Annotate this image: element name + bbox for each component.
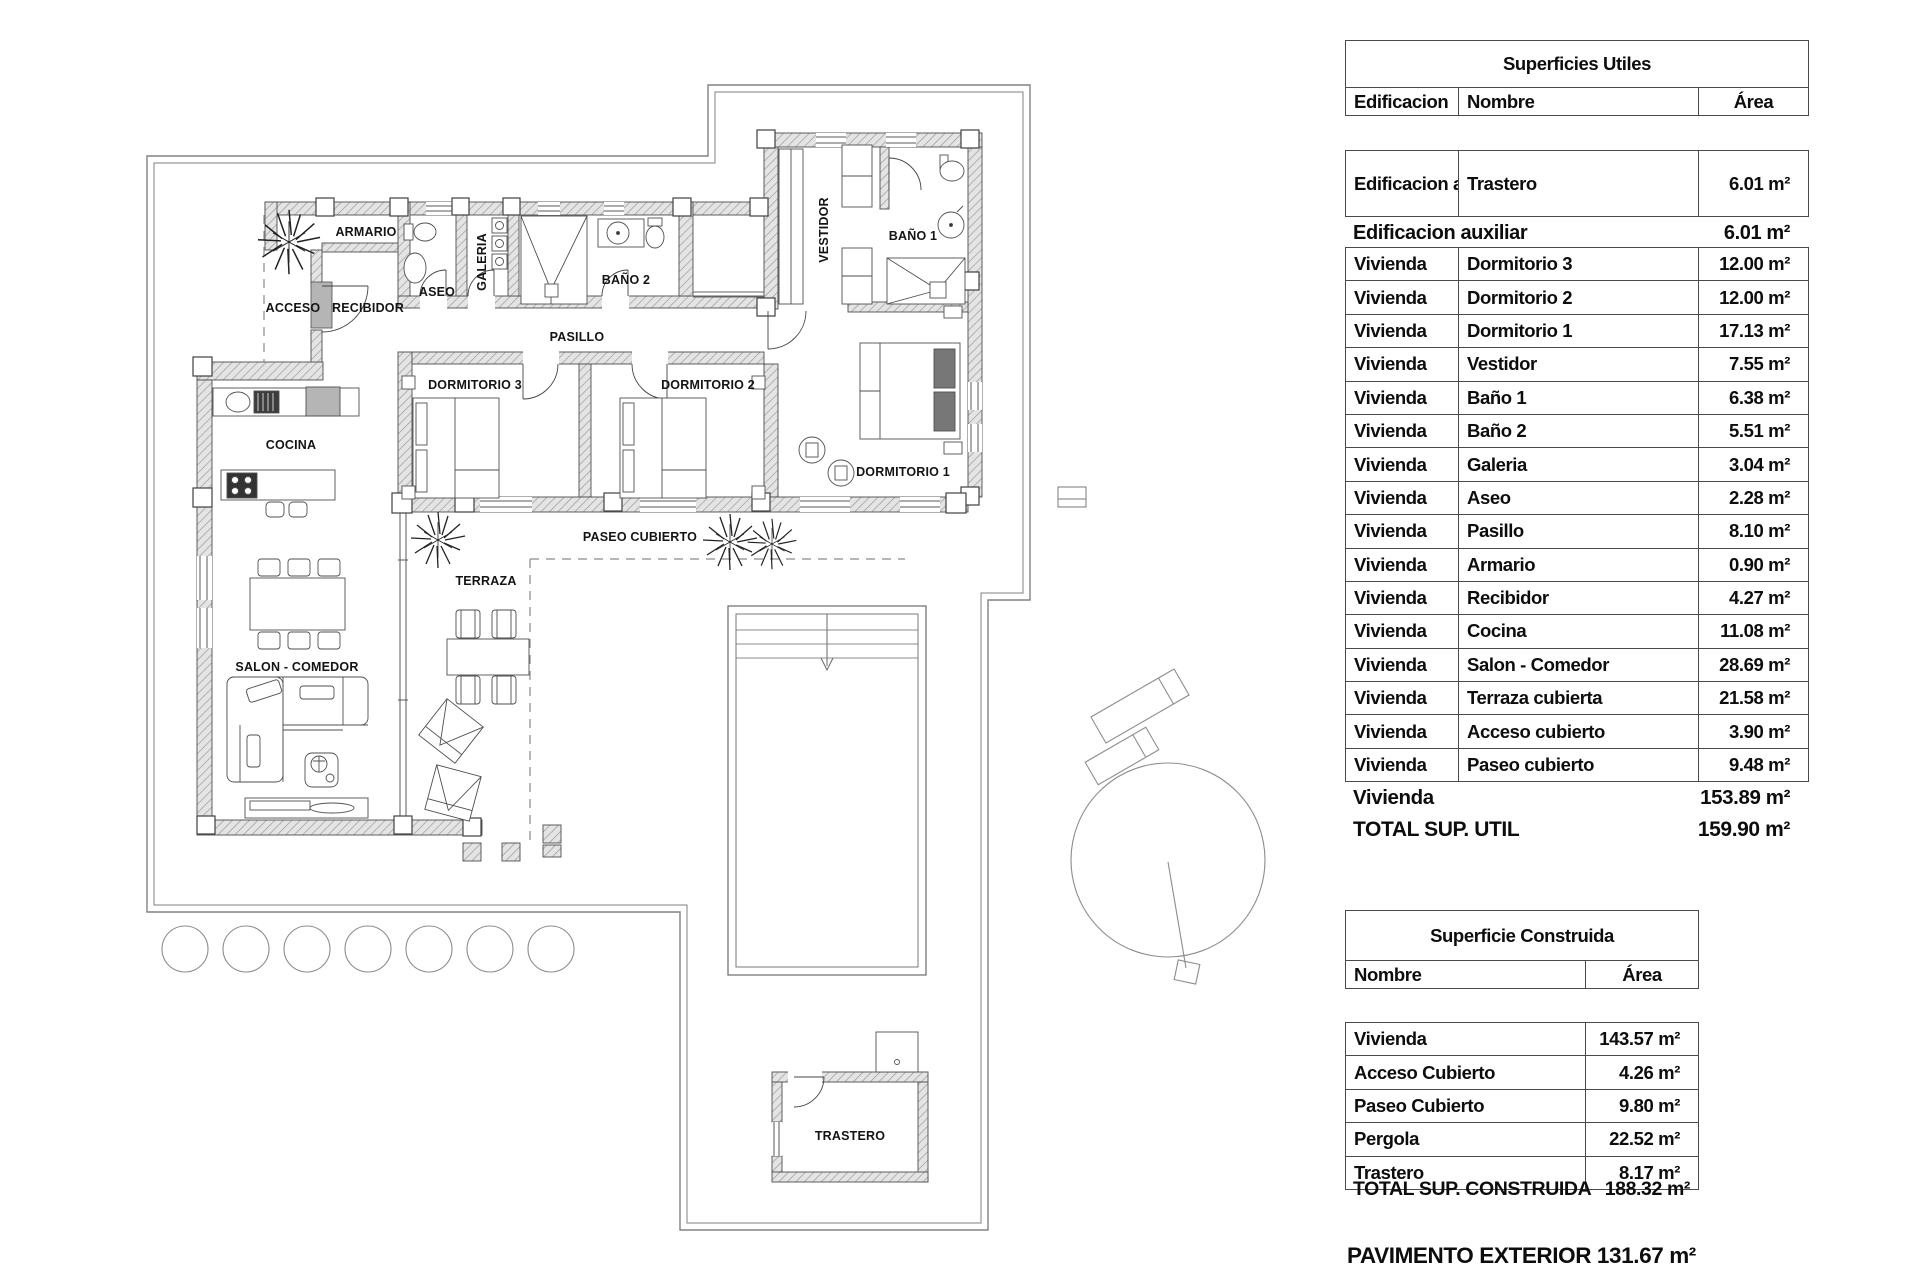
table-row: ViviendaSalon - Comedor28.69 m² xyxy=(1346,648,1809,681)
table-row: Acceso Cubierto4.26 m² xyxy=(1346,1056,1699,1089)
name-cell: Galeria xyxy=(1459,448,1699,481)
stool-icon xyxy=(289,502,307,517)
area-cell: 8.10 m² xyxy=(1699,515,1809,548)
area-cell: 4.27 m² xyxy=(1699,581,1809,614)
utiles-col-nombre: Nombre xyxy=(1459,88,1699,116)
aux-summary-row: Edificacion auxiliar 6.01 m² xyxy=(1345,222,1808,245)
area-cell: 6.38 m² xyxy=(1699,381,1809,414)
room-label-bano2: BAÑO 2 xyxy=(602,272,650,287)
toilet-icon xyxy=(646,226,664,248)
sofa-icon xyxy=(227,677,368,782)
name-cell: Vivienda xyxy=(1346,414,1459,447)
room-label-terraza: TERRAZA xyxy=(455,574,516,588)
aux-nombre-cell: Trastero xyxy=(1459,151,1699,217)
name-cell: Vivienda xyxy=(1346,314,1459,347)
name-cell: Vivienda xyxy=(1346,581,1459,614)
area-cell: 11.08 m² xyxy=(1699,615,1809,648)
name-cell: Armario xyxy=(1459,548,1699,581)
aux-summary-label: Edificacion auxiliar xyxy=(1345,222,1527,245)
dining-table xyxy=(250,578,345,630)
name-cell: Acceso cubierto xyxy=(1459,715,1699,748)
room-label-acceso: ACCESO xyxy=(266,301,321,315)
construida-title: Superficie Construida xyxy=(1346,911,1699,961)
room-label-bano1: BAÑO 1 xyxy=(889,228,937,243)
area-cell: 28.69 m² xyxy=(1699,648,1809,681)
toilet-icon xyxy=(404,224,413,240)
name-cell: Baño 1 xyxy=(1459,381,1699,414)
room-label-dormitorio2: DORMITORIO 2 xyxy=(661,378,755,392)
chair-icon xyxy=(456,610,480,638)
utiles-col-edificacion: Edificacion xyxy=(1346,88,1459,116)
bed-icon xyxy=(620,376,765,499)
room-label-dormitorio3: DORMITORIO 3 xyxy=(428,378,522,392)
table-row: ViviendaDormitorio 212.00 m² xyxy=(1346,281,1809,314)
name-cell: Vivienda xyxy=(1346,281,1459,314)
name-cell: Vestidor xyxy=(1459,348,1699,381)
name-cell: Salon - Comedor xyxy=(1459,648,1699,681)
name-cell: Pergola xyxy=(1346,1123,1586,1156)
toilet-icon xyxy=(940,161,964,181)
utiles-summary-vivienda: Vivienda 153.89 m² xyxy=(1345,786,1808,810)
summary-label: TOTAL SUP. UTIL xyxy=(1345,818,1519,842)
room-label-galeria: GALERIA xyxy=(475,233,489,291)
summary-value: 159.90 m² xyxy=(1698,818,1808,842)
area-cell: 7.55 m² xyxy=(1699,348,1809,381)
area-cell: 0.90 m² xyxy=(1699,548,1809,581)
construida-total-row: TOTAL SUP. CONSTRUIDA 188.32 m² xyxy=(1345,1178,1698,1201)
sink-icon xyxy=(226,392,250,412)
utiles-header-table: Superficies Utiles Edificacion Nombre Ár… xyxy=(1345,40,1809,116)
aux-area-cell: 6.01 m² xyxy=(1699,151,1809,217)
summary-value: 153.89 m² xyxy=(1700,786,1808,810)
area-cell: 5.51 m² xyxy=(1699,414,1809,447)
area-cell: 4.26 m² xyxy=(1586,1056,1699,1089)
room-label-paseo: PASEO CUBIERTO xyxy=(583,530,697,544)
table-row: ViviendaGaleria3.04 m² xyxy=(1346,448,1809,481)
name-cell: Vivienda xyxy=(1346,648,1459,681)
name-cell: Paseo cubierto xyxy=(1459,748,1699,781)
name-cell: Vivienda xyxy=(1346,448,1459,481)
room-label-armario: ARMARIO xyxy=(335,225,396,239)
room-label-salon: SALON - COMEDOR xyxy=(235,660,358,674)
name-cell: Pasillo xyxy=(1459,515,1699,548)
utiles-aux-table: Edificacion auxiliar Trastero 6.01 m² xyxy=(1345,150,1809,217)
area-cell: 12.00 m² xyxy=(1699,281,1809,314)
table-row: ViviendaVestidor7.55 m² xyxy=(1346,348,1809,381)
sun-loungers xyxy=(1085,669,1189,785)
construida-col-area: Área xyxy=(1586,961,1699,989)
utiles-col-area: Área xyxy=(1699,88,1809,116)
table-row: ViviendaRecibidor4.27 m² xyxy=(1346,581,1809,614)
name-cell: Dormitorio 1 xyxy=(1459,314,1699,347)
hob-icon xyxy=(227,473,257,498)
bed-icon xyxy=(402,376,499,499)
table-row: ViviendaPasillo8.10 m² xyxy=(1346,515,1809,548)
room-label-aseo: ASEO xyxy=(419,285,455,299)
aux-edificacion-cell: Edificacion auxiliar xyxy=(1346,151,1459,217)
utiles-rows-table: ViviendaDormitorio 312.00 m²ViviendaDorm… xyxy=(1345,247,1809,782)
fridge-icon xyxy=(306,387,340,416)
aux-summary-area: 6.01 m² xyxy=(1724,222,1808,245)
utiles-summary-total: TOTAL SUP. UTIL 159.90 m² xyxy=(1345,818,1808,842)
room-labels: ARMARIO ACCESO RECIBIDOR ASEO GALERIA BA… xyxy=(235,197,949,1143)
name-cell: Dormitorio 2 xyxy=(1459,281,1699,314)
table-row: ViviendaTerraza cubierta21.58 m² xyxy=(1346,682,1809,715)
area-cell: 2.28 m² xyxy=(1699,481,1809,514)
name-cell: Acceso Cubierto xyxy=(1346,1056,1586,1089)
table-row: Paseo Cubierto9.80 m² xyxy=(1346,1089,1699,1122)
construida-header-table: Superficie Construida Nombre Área xyxy=(1345,910,1699,989)
pavimento-exterior-line: PAVIMENTO EXTERIOR 131.67 m² xyxy=(1347,1243,1696,1269)
table-row: ViviendaAcceso cubierto3.90 m² xyxy=(1346,715,1809,748)
ac-unit-icon xyxy=(876,1032,918,1072)
room-label-recibidor: RECIBIDOR xyxy=(332,301,404,315)
construida-rows-table: Vivienda143.57 m²Acceso Cubierto4.26 m²P… xyxy=(1345,1022,1699,1190)
table-row: ViviendaDormitorio 117.13 m² xyxy=(1346,314,1809,347)
name-cell: Vivienda xyxy=(1346,1023,1586,1056)
name-cell: Vivienda xyxy=(1346,381,1459,414)
name-cell: Vivienda xyxy=(1346,515,1459,548)
utiles-title: Superficies Utiles xyxy=(1346,41,1809,88)
sink-icon xyxy=(404,253,426,283)
table-row: ViviendaAseo2.28 m² xyxy=(1346,481,1809,514)
room-label-vestidor: VESTIDOR xyxy=(817,197,831,263)
construida-total-value: 188.32 m² xyxy=(1605,1178,1698,1201)
summary-label: Vivienda xyxy=(1345,786,1434,810)
room-label-trastero: TRASTERO xyxy=(815,1129,885,1143)
big-tree xyxy=(1071,763,1265,984)
table-row: ViviendaDormitorio 312.00 m² xyxy=(1346,248,1809,281)
room-label-cocina: COCINA xyxy=(266,438,317,452)
name-cell: Vivienda xyxy=(1346,682,1459,715)
chair-icon xyxy=(258,559,280,576)
lounge-chair-icon xyxy=(419,699,484,764)
pool xyxy=(728,606,926,975)
page: ARMARIO ACCESO RECIBIDOR ASEO GALERIA BA… xyxy=(0,0,1920,1280)
table-row: ViviendaBaño 25.51 m² xyxy=(1346,414,1809,447)
name-cell: Recibidor xyxy=(1459,581,1699,614)
table-row: ViviendaArmario0.90 m² xyxy=(1346,548,1809,581)
room-label-pasillo: PASILLO xyxy=(550,330,605,344)
area-cell: 143.57 m² xyxy=(1586,1023,1699,1056)
table-row: Pergola22.52 m² xyxy=(1346,1123,1699,1156)
name-cell: Vivienda xyxy=(1346,248,1459,281)
name-cell: Vivienda xyxy=(1346,748,1459,781)
name-cell: Terraza cubierta xyxy=(1459,682,1699,715)
shrub-row xyxy=(162,926,574,972)
gate-icon xyxy=(1058,487,1086,507)
name-cell: Vivienda xyxy=(1346,348,1459,381)
area-cell: 17.13 m² xyxy=(1699,314,1809,347)
room-label-dormitorio1: DORMITORIO 1 xyxy=(856,465,950,479)
name-cell: Vivienda xyxy=(1346,481,1459,514)
name-cell: Dormitorio 3 xyxy=(1459,248,1699,281)
area-cell: 22.52 m² xyxy=(1586,1123,1699,1156)
name-cell: Vivienda xyxy=(1346,615,1459,648)
table-row: Vivienda143.57 m² xyxy=(1346,1023,1699,1056)
table-row: ViviendaPaseo cubierto9.48 m² xyxy=(1346,748,1809,781)
area-cell: 9.48 m² xyxy=(1699,748,1809,781)
name-cell: Cocina xyxy=(1459,615,1699,648)
area-cell: 3.90 m² xyxy=(1699,715,1809,748)
terrace-table xyxy=(447,639,529,675)
bed-icon xyxy=(860,306,962,454)
area-cell: 3.04 m² xyxy=(1699,448,1809,481)
stool-icon xyxy=(266,502,284,517)
lounge-chair-icon xyxy=(425,765,481,821)
name-cell: Vivienda xyxy=(1346,548,1459,581)
construida-total-label: TOTAL SUP. CONSTRUIDA xyxy=(1345,1178,1591,1201)
floor-plan: ARMARIO ACCESO RECIBIDOR ASEO GALERIA BA… xyxy=(0,0,1330,1280)
name-cell: Vivienda xyxy=(1346,715,1459,748)
name-cell: Paseo Cubierto xyxy=(1346,1089,1586,1122)
construida-col-nombre: Nombre xyxy=(1346,961,1586,989)
table-row: ViviendaCocina11.08 m² xyxy=(1346,615,1809,648)
area-cell: 12.00 m² xyxy=(1699,248,1809,281)
area-cell: 9.80 m² xyxy=(1586,1089,1699,1122)
table-row: ViviendaBaño 16.38 m² xyxy=(1346,381,1809,414)
name-cell: Aseo xyxy=(1459,481,1699,514)
area-cell: 21.58 m² xyxy=(1699,682,1809,715)
name-cell: Baño 2 xyxy=(1459,414,1699,447)
